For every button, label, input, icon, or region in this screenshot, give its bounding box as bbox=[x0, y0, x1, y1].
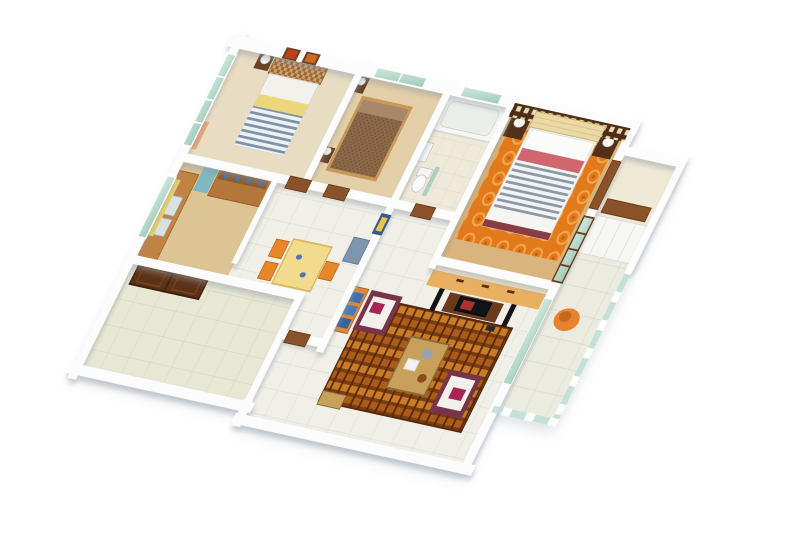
floorplan-image bbox=[0, 0, 800, 550]
floorplan-svg bbox=[0, 0, 800, 550]
